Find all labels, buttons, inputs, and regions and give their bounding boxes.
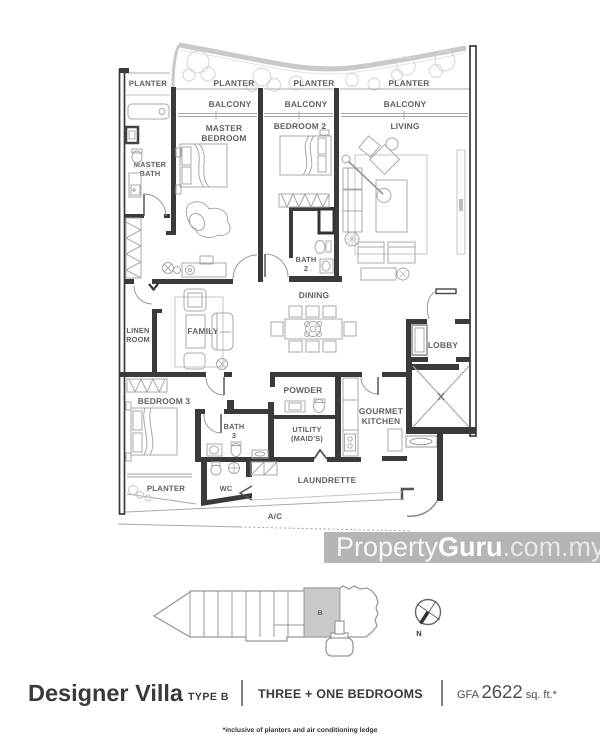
svg-text:GOURMET: GOURMET xyxy=(359,406,404,416)
svg-text:BALCONY: BALCONY xyxy=(384,99,427,109)
svg-text:LOBBY: LOBBY xyxy=(428,340,459,350)
svg-text:3: 3 xyxy=(232,431,236,440)
svg-text:PLANTER: PLANTER xyxy=(214,78,255,88)
svg-text:DINING: DINING xyxy=(299,290,330,300)
svg-text:PropertyGuru.com.my: PropertyGuru.com.my xyxy=(336,532,600,562)
svg-text:(MAID'S): (MAID'S) xyxy=(291,434,323,443)
svg-text:BEDROOM: BEDROOM xyxy=(201,133,246,143)
svg-text:B: B xyxy=(317,610,322,617)
svg-text:LAUNDRETTE: LAUNDRETTE xyxy=(298,475,357,485)
svg-text:*inclusive of planters and air: *inclusive of planters and air condition… xyxy=(223,727,378,734)
svg-text:BATH: BATH xyxy=(224,422,245,431)
svg-text:UTILITY: UTILITY xyxy=(292,425,321,434)
svg-text:THREE + ONE BEDROOMS: THREE + ONE BEDROOMS xyxy=(258,687,423,701)
svg-text:Designer Villa: Designer Villa xyxy=(28,680,184,706)
svg-text:MASTER: MASTER xyxy=(134,160,167,169)
svg-text:KITCHEN: KITCHEN xyxy=(362,416,401,426)
svg-text:PLANTER: PLANTER xyxy=(294,78,335,88)
svg-text:WC: WC xyxy=(220,484,233,493)
svg-text:BATH: BATH xyxy=(140,169,161,178)
svg-text:LINEN: LINEN xyxy=(126,326,149,335)
svg-text:MASTER: MASTER xyxy=(206,123,243,133)
svg-text:ROOM: ROOM xyxy=(126,335,150,344)
svg-text:BALCONY: BALCONY xyxy=(209,99,252,109)
svg-text:N: N xyxy=(416,629,421,638)
svg-text:FAMILY: FAMILY xyxy=(187,326,218,336)
svg-text:LIVING: LIVING xyxy=(390,121,419,131)
svg-text:PLANTER: PLANTER xyxy=(389,78,430,88)
svg-text:A/C: A/C xyxy=(268,512,282,521)
svg-text:2: 2 xyxy=(304,264,308,273)
svg-text:BEDROOM 2: BEDROOM 2 xyxy=(274,121,327,131)
svg-text:PLANTER: PLANTER xyxy=(129,79,167,88)
svg-text:TYPE B: TYPE B xyxy=(188,691,229,703)
svg-text:BALCONY: BALCONY xyxy=(285,99,328,109)
svg-text:POWDER: POWDER xyxy=(284,385,323,395)
svg-text:BATH: BATH xyxy=(296,255,317,264)
svg-text:PLANTER: PLANTER xyxy=(147,484,185,493)
svg-text:BEDROOM 3: BEDROOM 3 xyxy=(138,396,191,406)
